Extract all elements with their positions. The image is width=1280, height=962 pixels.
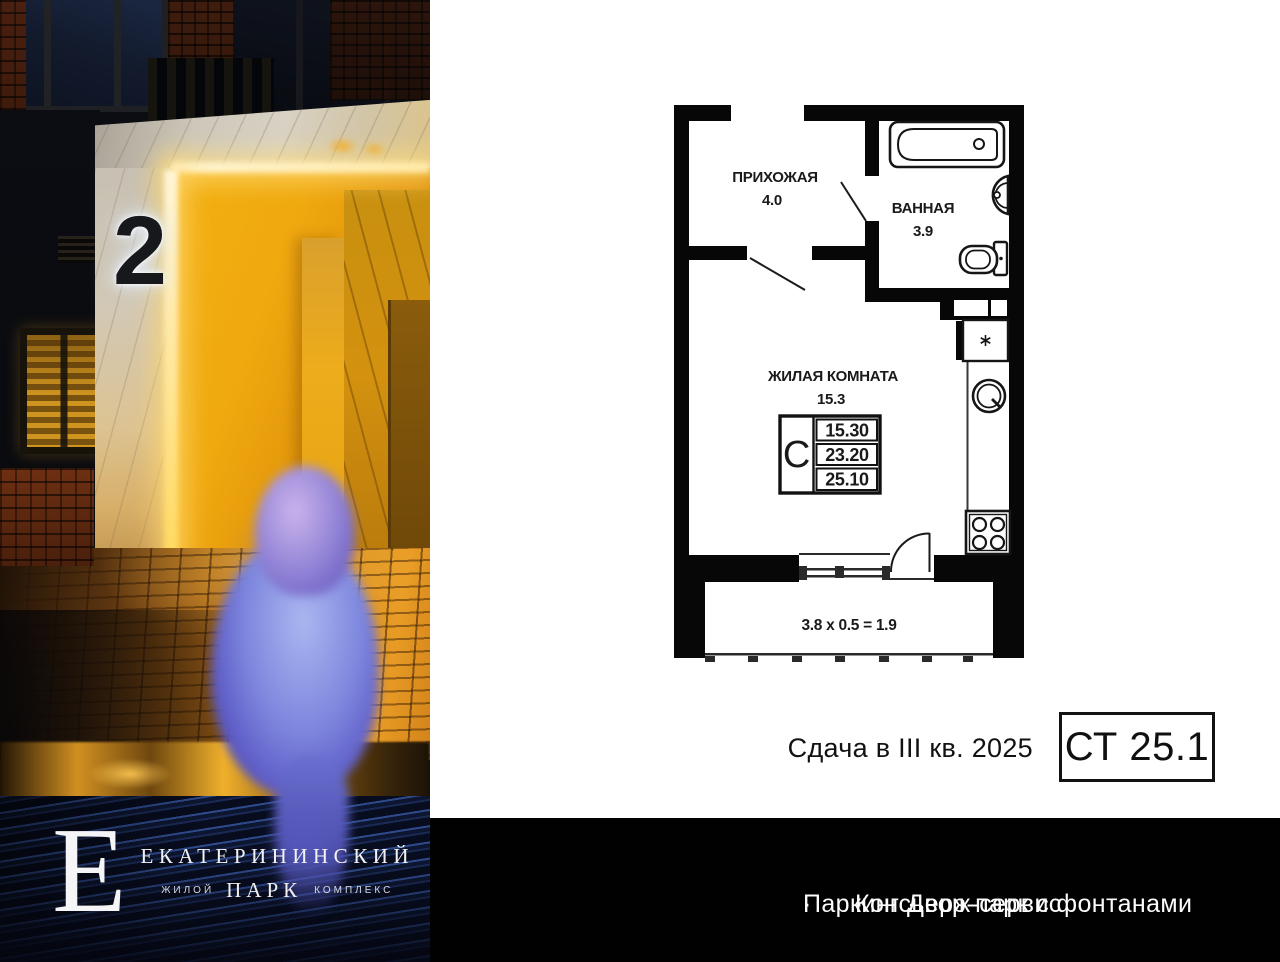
bathtub-icon: [890, 122, 1004, 167]
unit-type-letter: С: [783, 434, 810, 476]
kitchen-counter-line: [967, 361, 969, 511]
brand-sub-right: КОМПЛЕКС: [314, 885, 393, 896]
facade-window-glass: [4, 0, 168, 112]
brand-monogram: Е: [52, 810, 127, 932]
unit-label: СТ 25.1: [1065, 725, 1209, 770]
floor-plan: ПРИХОЖАЯ 4.0 ВАННАЯ 3.9 ЖИЛАЯ КОМНАТА 15…: [672, 100, 1024, 663]
amenity-label: Двор-парк с фонтанами: [907, 890, 1192, 919]
foreground-brick-wall: [0, 468, 94, 566]
unit-label-box: СТ 25.1: [1059, 712, 1215, 782]
washbasin-icon: [993, 176, 1008, 214]
apartment-area-value: 23.20: [825, 445, 869, 465]
stove-icon: [966, 511, 1010, 554]
duct-shafts: [954, 300, 1007, 316]
entrance-photo: 2 Е ЕКАТЕРИНИНСКИЙ ЖИЛОЙ ПАРК КОМПЛЕКС: [0, 0, 430, 962]
spec-table: С 15.30 23.20 25.10: [780, 416, 880, 493]
room-area-bathroom: 3.9: [913, 223, 933, 240]
room-area-living: 15.3: [817, 391, 845, 408]
brand-subtitle: ЖИЛОЙ ПАРК КОМПЛЕКС: [161, 878, 393, 903]
brand-text: ЕКАТЕРИНИНСКИЙ ЖИЛОЙ ПАРК КОМПЛЕКС: [141, 844, 415, 903]
brand-name: ЕКАТЕРИНИНСКИЙ: [141, 844, 415, 869]
brand-sub-left: ЖИЛОЙ: [161, 885, 214, 896]
building-number: 2: [96, 202, 184, 299]
amenities-bar: ·Паркинг ·Консьерж-сервис ·Двор-парк с ф…: [430, 818, 1280, 962]
balcony-railing: [705, 653, 993, 662]
brick-pier-right: [330, 0, 430, 100]
room-label-hallway: ПРИХОЖАЯ: [732, 169, 817, 186]
total-area-value: 25.10: [825, 470, 869, 490]
bathroom-door-leaf: [841, 182, 866, 221]
marble-light-reflection: [318, 126, 398, 166]
living-area-value: 15.30: [825, 421, 869, 441]
toilet-icon: [960, 242, 1007, 275]
bird-head: [255, 466, 355, 596]
window: [799, 553, 934, 580]
delivery-date: Сдача в III кв. 2025: [700, 733, 1033, 764]
brand-logo: Е ЕКАТЕРИНИНСКИЙ ЖИЛОЙ ПАРК КОМПЛЕКС: [52, 810, 382, 950]
balcony-door-arc: [891, 533, 930, 572]
kitchen-sink-icon: [973, 380, 1005, 412]
balcony-formula: 3.8 x 0.5 = 1.9: [801, 617, 897, 634]
brand-sub-center: ПАРК: [226, 878, 302, 903]
room-label-living: ЖИЛАЯ КОМНАТА: [767, 368, 898, 385]
room-door-leaf: [750, 258, 805, 290]
fridge-icon: [956, 320, 1008, 361]
listing-card: 2 Е ЕКАТЕРИНИНСКИЙ ЖИЛОЙ ПАРК КОМПЛЕКС: [0, 0, 1280, 962]
room-label-bathroom: ВАННАЯ: [892, 200, 954, 217]
room-area-hallway: 4.0: [762, 192, 782, 209]
